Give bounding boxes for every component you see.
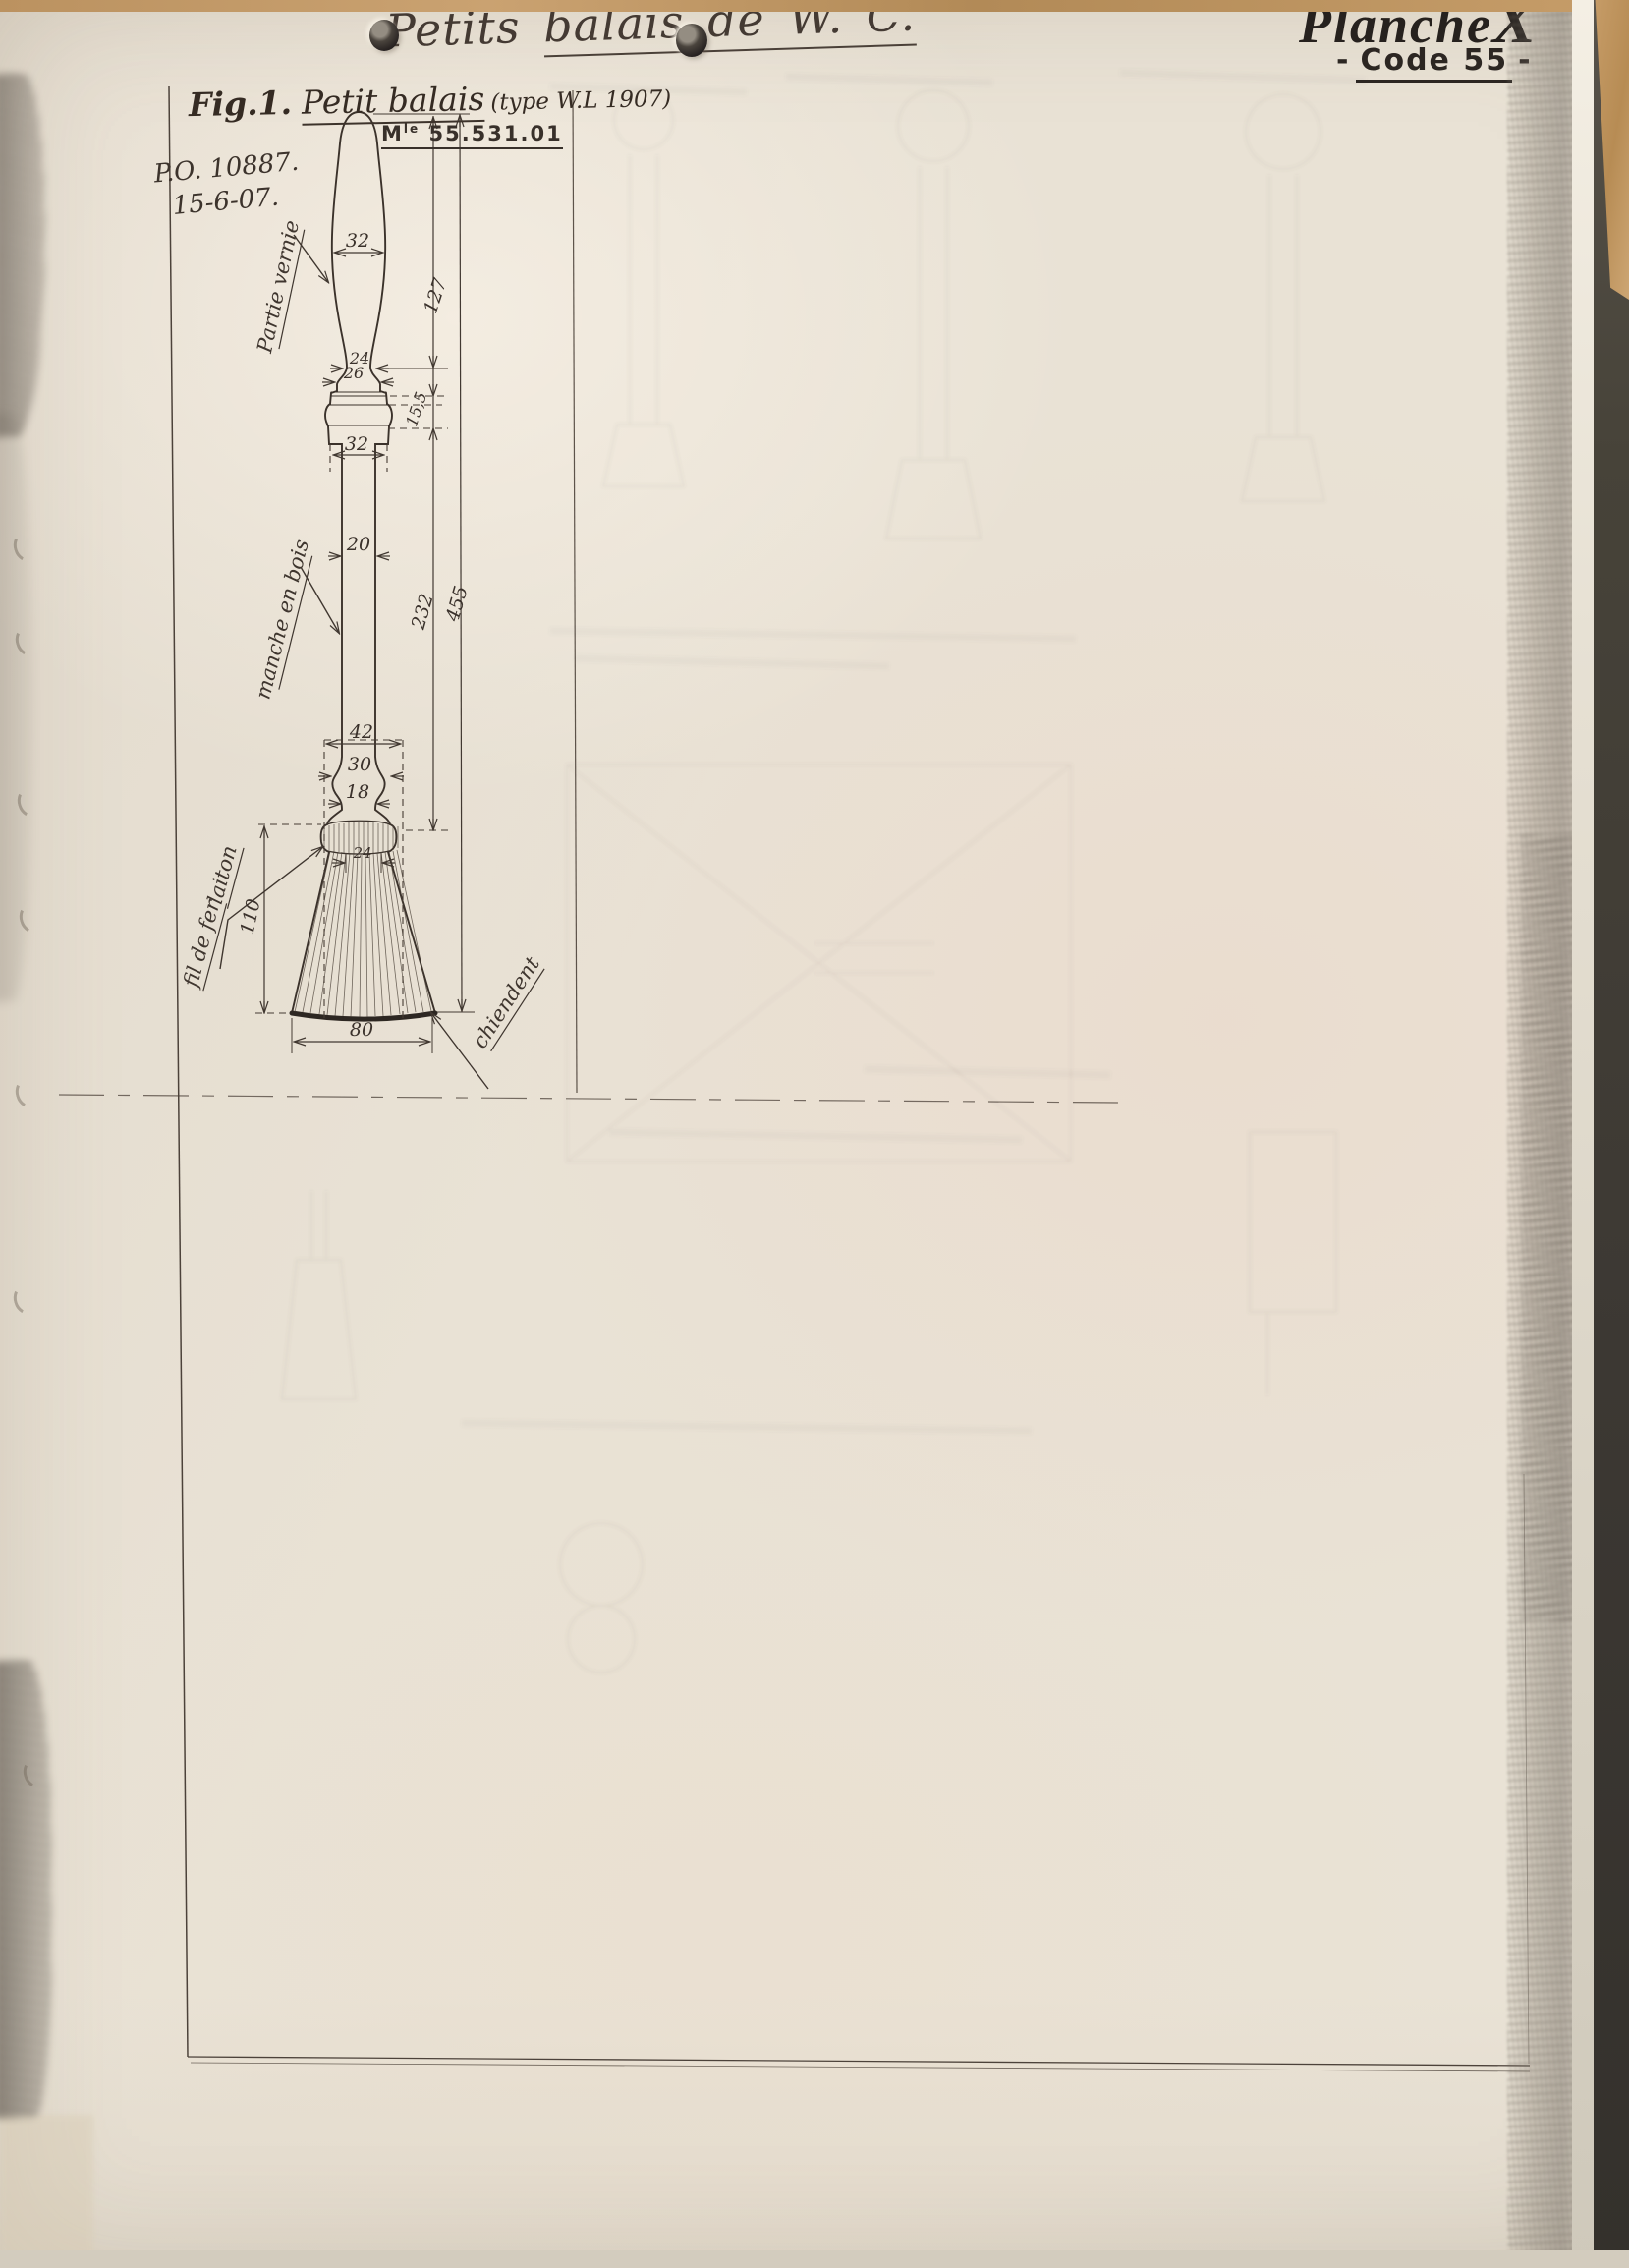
dim-collar-height: 15,5 bbox=[402, 389, 430, 428]
code-stamp: -Code 55- bbox=[1336, 43, 1533, 78]
dim-head-height: 110 bbox=[237, 897, 265, 936]
model-number: Mle 55.531.01 bbox=[381, 122, 563, 149]
code-text: Code 55 bbox=[1356, 43, 1512, 83]
dim-tip: 18 bbox=[346, 781, 369, 803]
punch-hole-left bbox=[369, 20, 399, 51]
dim-base-width: 80 bbox=[350, 1019, 373, 1041]
label-wire-line1: fil de fer bbox=[178, 896, 225, 992]
model-prefix: M bbox=[381, 122, 404, 145]
background-dark-right bbox=[1594, 0, 1629, 2268]
scanned-plate-page: 32 127 24 26 15,5 32 20 232 455 42 30 18… bbox=[0, 0, 1629, 2268]
code-dash-right: - bbox=[1518, 43, 1532, 78]
dim-handle-width: 32 bbox=[346, 230, 369, 252]
dim-wire-band: 24 bbox=[352, 844, 371, 862]
page-frame bbox=[59, 86, 1530, 2071]
page-bottom-edge bbox=[0, 2250, 1629, 2268]
part-labels: Partie vernie manche en bois fil de fer … bbox=[178, 218, 546, 1053]
code-dash-left: - bbox=[1336, 43, 1350, 78]
dim-ferrule-width: 32 bbox=[345, 433, 368, 455]
construction-dashes bbox=[255, 396, 452, 1022]
collar-lines bbox=[327, 392, 390, 425]
model-superscript: le bbox=[404, 122, 420, 136]
desk-wood-top bbox=[0, 0, 1629, 12]
dim-flare: 30 bbox=[348, 754, 371, 775]
dim-total-length: 455 bbox=[441, 584, 472, 625]
dim-shaft-diameter: 20 bbox=[346, 534, 370, 555]
extension-lines bbox=[292, 114, 475, 1053]
punch-hole-right bbox=[676, 24, 707, 57]
label-wire-line2: laiton bbox=[203, 843, 242, 907]
label-varnished-part: Partie vernie bbox=[253, 218, 304, 356]
technical-drawing: 32 127 24 26 15,5 32 20 232 455 42 30 18… bbox=[0, 0, 1629, 2268]
dim-handle-length: 127 bbox=[420, 275, 451, 316]
ghost-bleedthrough bbox=[282, 73, 1366, 1673]
model-digits: 55.531.01 bbox=[428, 122, 562, 145]
figure-box-right-rule bbox=[573, 90, 577, 1093]
page-edge-highlight bbox=[1572, 0, 1596, 2268]
figure-type: (type W.L 1907) bbox=[490, 86, 671, 116]
figure-name: Petit balais bbox=[302, 80, 485, 126]
reference-block: P.O. 10887. 15-6-07. bbox=[152, 145, 303, 225]
dim-head-box: 42 bbox=[349, 721, 373, 743]
centerline-dash bbox=[59, 1095, 1120, 1103]
dim-neck-bottom: 26 bbox=[343, 364, 364, 382]
figure-number: Fig.1. bbox=[189, 84, 293, 124]
label-bristles: chiendent bbox=[468, 952, 544, 1052]
